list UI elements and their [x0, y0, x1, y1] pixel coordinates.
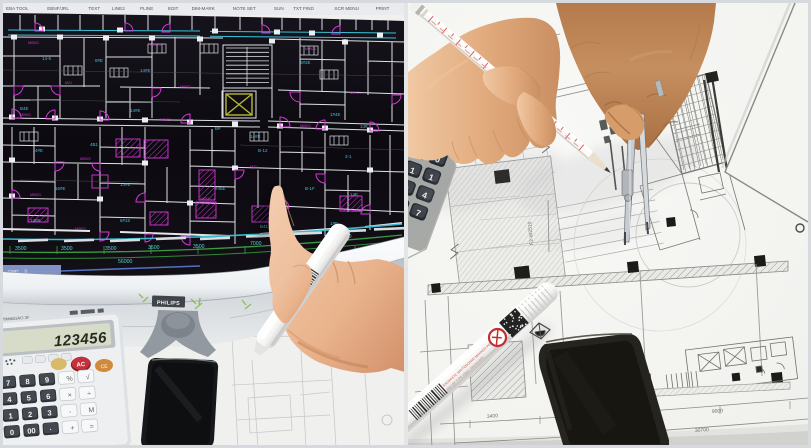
svg-text:M21: M21: [250, 165, 257, 169]
svg-text:3400: 3400: [487, 413, 499, 420]
svg-text:30700: 30700: [695, 427, 710, 434]
svg-text:EDIT: EDIT: [168, 6, 179, 11]
svg-text:AC: AC: [76, 362, 86, 369]
svg-text:M0921: M0921: [300, 124, 311, 128]
svg-text:3-1: 3-1: [345, 154, 352, 159]
svg-text:TEXT: TEXT: [88, 6, 100, 11]
svg-text:7000: 7000: [250, 241, 262, 247]
svg-text:00: 00: [27, 426, 36, 436]
svg-text:CE: CE: [100, 364, 108, 371]
svg-text:=: =: [90, 423, 95, 430]
svg-text:8#E: 8#E: [95, 58, 103, 63]
svg-text:9000: 9000: [712, 408, 724, 415]
svg-text:+: +: [70, 425, 75, 432]
svg-text:7: 7: [6, 378, 11, 387]
svg-text:SCR MENU: SCR MENU: [334, 6, 359, 11]
svg-text:14-5: 14-5: [42, 56, 52, 61]
svg-text:B#: B#: [215, 126, 221, 131]
svg-text:8: 8: [25, 377, 30, 386]
svg-text:56000: 56000: [118, 259, 133, 265]
svg-text:14#E: 14#E: [140, 68, 151, 73]
svg-text:M0921: M0921: [20, 113, 31, 117]
svg-text:M0921: M0921: [160, 118, 171, 122]
svg-text:M0921: M0921: [305, 47, 316, 51]
svg-text:3: 3: [47, 408, 52, 417]
svg-text:3500: 3500: [15, 246, 27, 252]
svg-text:PHILIPS: PHILIPS: [157, 300, 180, 307]
svg-text:14E: 14E: [350, 192, 358, 197]
svg-text:0: 0: [10, 428, 15, 437]
svg-text:9: 9: [45, 375, 50, 384]
svg-text:M0921: M0921: [75, 227, 86, 231]
svg-text:3500: 3500: [61, 246, 73, 252]
svg-text:2: 2: [28, 410, 33, 419]
svg-text:4#E: 4#E: [35, 148, 43, 153]
svg-text:14#E: 14#E: [120, 182, 131, 187]
svg-text:1: 1: [8, 411, 13, 420]
svg-text:M21: M21: [65, 81, 72, 85]
svg-text:DIM-MARK: DIM-MARK: [192, 6, 216, 11]
svg-text:3500: 3500: [105, 246, 117, 252]
svg-text:6: 6: [46, 392, 51, 401]
svg-text:÷: ÷: [87, 391, 92, 398]
svg-text:TXT FIND: TXT FIND: [293, 6, 314, 11]
svg-text:3500: 3500: [193, 244, 205, 250]
svg-text:4B1: 4B1: [90, 142, 99, 147]
svg-text:B-12: B-12: [258, 148, 268, 153]
svg-text:14#E: 14#E: [130, 108, 141, 113]
svg-text:SUN: SUN: [274, 6, 284, 11]
svg-text:√: √: [86, 373, 91, 381]
svg-text:#45E: #45E: [215, 186, 226, 191]
svg-text:1#4E: 1#4E: [330, 112, 341, 117]
svg-text:PLINE: PLINE: [140, 6, 153, 11]
svg-text:M0921: M0921: [200, 197, 211, 201]
svg-text:14B5: 14B5: [30, 218, 41, 223]
svg-text:16#E: 16#E: [55, 186, 66, 191]
svg-text:M0921: M0921: [350, 91, 361, 95]
svg-text:EBA TOOL: EBA TOOL: [6, 6, 29, 11]
svg-text:14#: 14#: [360, 124, 368, 129]
svg-text:B-1F: B-1F: [305, 186, 315, 191]
svg-text:M0921: M0921: [352, 209, 363, 213]
svg-text:5#2E: 5#2E: [300, 60, 311, 65]
svg-text:M0921: M0921: [28, 41, 39, 45]
svg-text:M0921: M0921: [30, 193, 41, 197]
svg-text:M0921: M0921: [180, 85, 191, 89]
svg-text:M0921: M0921: [150, 43, 161, 47]
svg-text:EBNF/JRL: EBNF/JRL: [47, 6, 69, 11]
svg-text:14#E: 14#E: [250, 134, 261, 139]
svg-text:PRINT: PRINT: [376, 6, 390, 11]
svg-text:3500: 3500: [148, 245, 160, 251]
svg-text:B4E: B4E: [20, 106, 29, 111]
svg-text:%: %: [66, 376, 73, 383]
svg-text:8#15: 8#15: [120, 218, 131, 223]
svg-text:M0921: M0921: [80, 157, 91, 161]
svg-text:5: 5: [26, 393, 31, 402]
svg-text:NOTE SET: NOTE SET: [233, 6, 256, 11]
svg-text:LINE2: LINE2: [112, 6, 125, 11]
svg-text:×: ×: [67, 392, 72, 399]
svg-text:M: M: [88, 407, 95, 414]
